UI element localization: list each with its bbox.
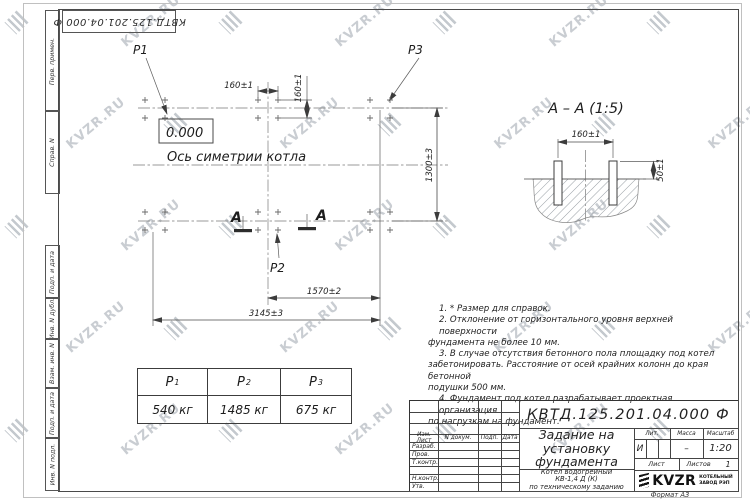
tb-scale-value: 1:20: [703, 439, 738, 458]
title-block-designation: КВТД.125.201.04.000 Ф: [519, 401, 738, 428]
dim-text-bolt-x: 160±1: [224, 81, 253, 91]
company-logo: KVZR КОТЕЛЬНЫЙ ЗАВОД РЭП: [634, 470, 738, 491]
section-letter-left: А: [230, 210, 242, 226]
load-point-p1-leader: [146, 58, 167, 114]
tb-scale-label: Масштаб: [703, 428, 738, 439]
boiler-symmetry-axis-label: Ось симетрии котла: [167, 150, 306, 165]
title-block: КВТД.125.201.04.000 Ф Изм. Лист N докум.…: [409, 400, 738, 491]
tb-lit-value: И: [634, 439, 646, 458]
dim-text-full: 3145±3: [249, 309, 283, 319]
load-point-p2-label: P2: [270, 261, 285, 275]
section-view-title: А – А (1:5): [547, 101, 624, 117]
note-line: забетонировать. Расстояние от осей крайн…: [428, 360, 730, 383]
format-label: Формат А3: [638, 491, 702, 499]
tb-sheets-cell: Листов 1: [679, 458, 738, 470]
tb-mass-label: Масса: [670, 428, 703, 439]
tb-row-tkontr: Т.контр.: [412, 459, 438, 466]
section-dim-text-160: 160±1: [572, 130, 601, 140]
loads-table-value-p3: 675 кг: [281, 396, 351, 423]
dim-text-half: 1570±2: [307, 287, 341, 297]
dim-text-rows: 1300±3: [425, 148, 435, 182]
concrete-foundation-hatch: [533, 179, 639, 223]
loads-table-header-p1: P1: [138, 369, 208, 396]
tb-row-utv: Утв.: [412, 483, 425, 490]
note-line: 1. * Размер для справок.: [428, 304, 730, 315]
anchor-bolt-left: [554, 161, 562, 205]
dim-text-bolt-y: 160±1: [294, 74, 304, 103]
tb-header-data: Дата: [501, 434, 519, 442]
tb-row-prov: Пров.: [412, 451, 429, 458]
note-line: фундамента не более 10 мм.: [428, 338, 730, 349]
loads-table: P1 P2 P3 540 кг 1485 кг 675 кг: [137, 368, 352, 424]
anchor-bolt-right: [609, 161, 617, 205]
tb-header-n-dokum: N докум.: [438, 434, 478, 442]
kvzr-logo-caption: КОТЕЛЬНЫЙ ЗАВОД РЭП: [699, 475, 733, 486]
elevation-mark-value: 0.000: [166, 126, 203, 141]
section-cut-mark-left: [234, 229, 252, 232]
plan-extension-lines: [153, 86, 443, 326]
loads-table-value-p2: 1485 кг: [208, 396, 281, 423]
tb-header-podp: Подп.: [478, 434, 501, 442]
tb-row-nkontr: Н.контр.: [412, 475, 439, 482]
section-letter-right: А: [315, 208, 327, 224]
load-point-p3-leader: [389, 58, 419, 101]
drawing-sheet: KVZR.RUKVZR.RUKVZR.RUKVZR.RUKVZR.RUKVZR.…: [0, 0, 750, 500]
load-point-p2-leader: [277, 234, 279, 258]
load-point-p1-label: P1: [133, 43, 148, 57]
section-cut-mark-right: [298, 227, 316, 230]
tb-sheet-label: Лист: [634, 458, 679, 470]
note-line: 3. В случае отсутствия бетонного пола пл…: [428, 349, 730, 360]
tb-row-razrab: Разраб.: [412, 443, 436, 450]
loads-table-header-p2: P2: [208, 369, 281, 396]
note-line: 2. Отклонение от горизонтального уровня …: [428, 315, 730, 338]
kvzr-logo-icon: [639, 472, 649, 488]
tb-mass-value: –: [670, 439, 703, 458]
tb-lit-label: Лит.: [634, 428, 670, 439]
loads-table-value-p1: 540 кг: [138, 396, 208, 423]
tb-header-izm-list: Изм. Лист: [410, 434, 438, 442]
tb-sheets-value: 1: [726, 460, 731, 469]
product-name: Котел водогрейный КВ-1,4 Д (К) по технич…: [519, 469, 634, 491]
note-line: подушки 500 мм.: [428, 383, 730, 394]
loads-table-header-p3: P3: [281, 369, 351, 396]
section-dim-text-50: 50±1: [656, 158, 666, 181]
document-title: Задание на установку фундамента: [519, 428, 634, 469]
load-point-p3-label: P3: [408, 43, 423, 57]
kvzr-logo-text: KVZR: [652, 473, 696, 489]
